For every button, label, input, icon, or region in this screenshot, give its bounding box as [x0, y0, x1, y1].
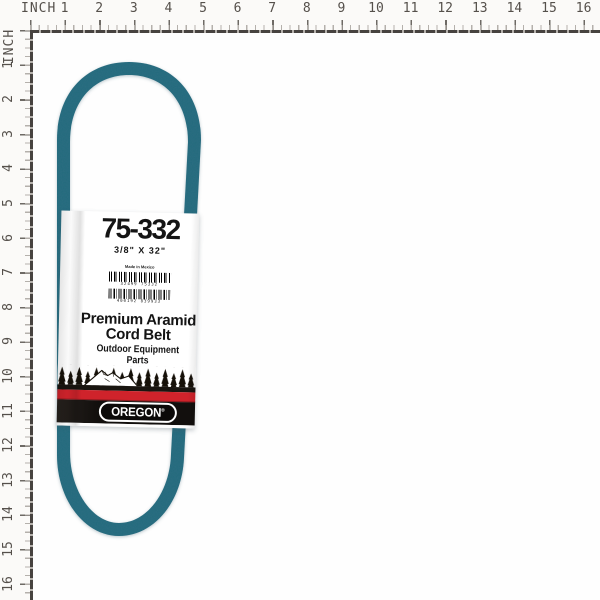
- product-label: 75-332 3/8" X 32" Made in Mexico 32499 7…: [57, 210, 200, 428]
- label-text-block: 75-332 3/8" X 32" Made in Mexico 32499 7…: [58, 210, 199, 367]
- barcode-lower-digits: 400192 839933: [80, 298, 197, 305]
- oregon-logo-section: OREGON®: [57, 399, 195, 425]
- product-name-line2: Cord Belt: [79, 326, 196, 344]
- product-photo: INCH INCH 12345678910111213141516 123456…: [0, 0, 600, 600]
- product-subtitle: Outdoor Equipment Parts: [86, 343, 189, 367]
- barcode-upper-digits: 32499 75332: [81, 281, 198, 288]
- oregon-logo: OREGON®: [99, 402, 177, 424]
- belt-size: 3/8" X 32": [81, 244, 198, 257]
- part-number: 75-332: [82, 214, 200, 245]
- registered-mark: ®: [161, 408, 164, 414]
- brand-name: OREGON®: [111, 405, 165, 420]
- made-in-text: Made in Mexico: [81, 263, 198, 271]
